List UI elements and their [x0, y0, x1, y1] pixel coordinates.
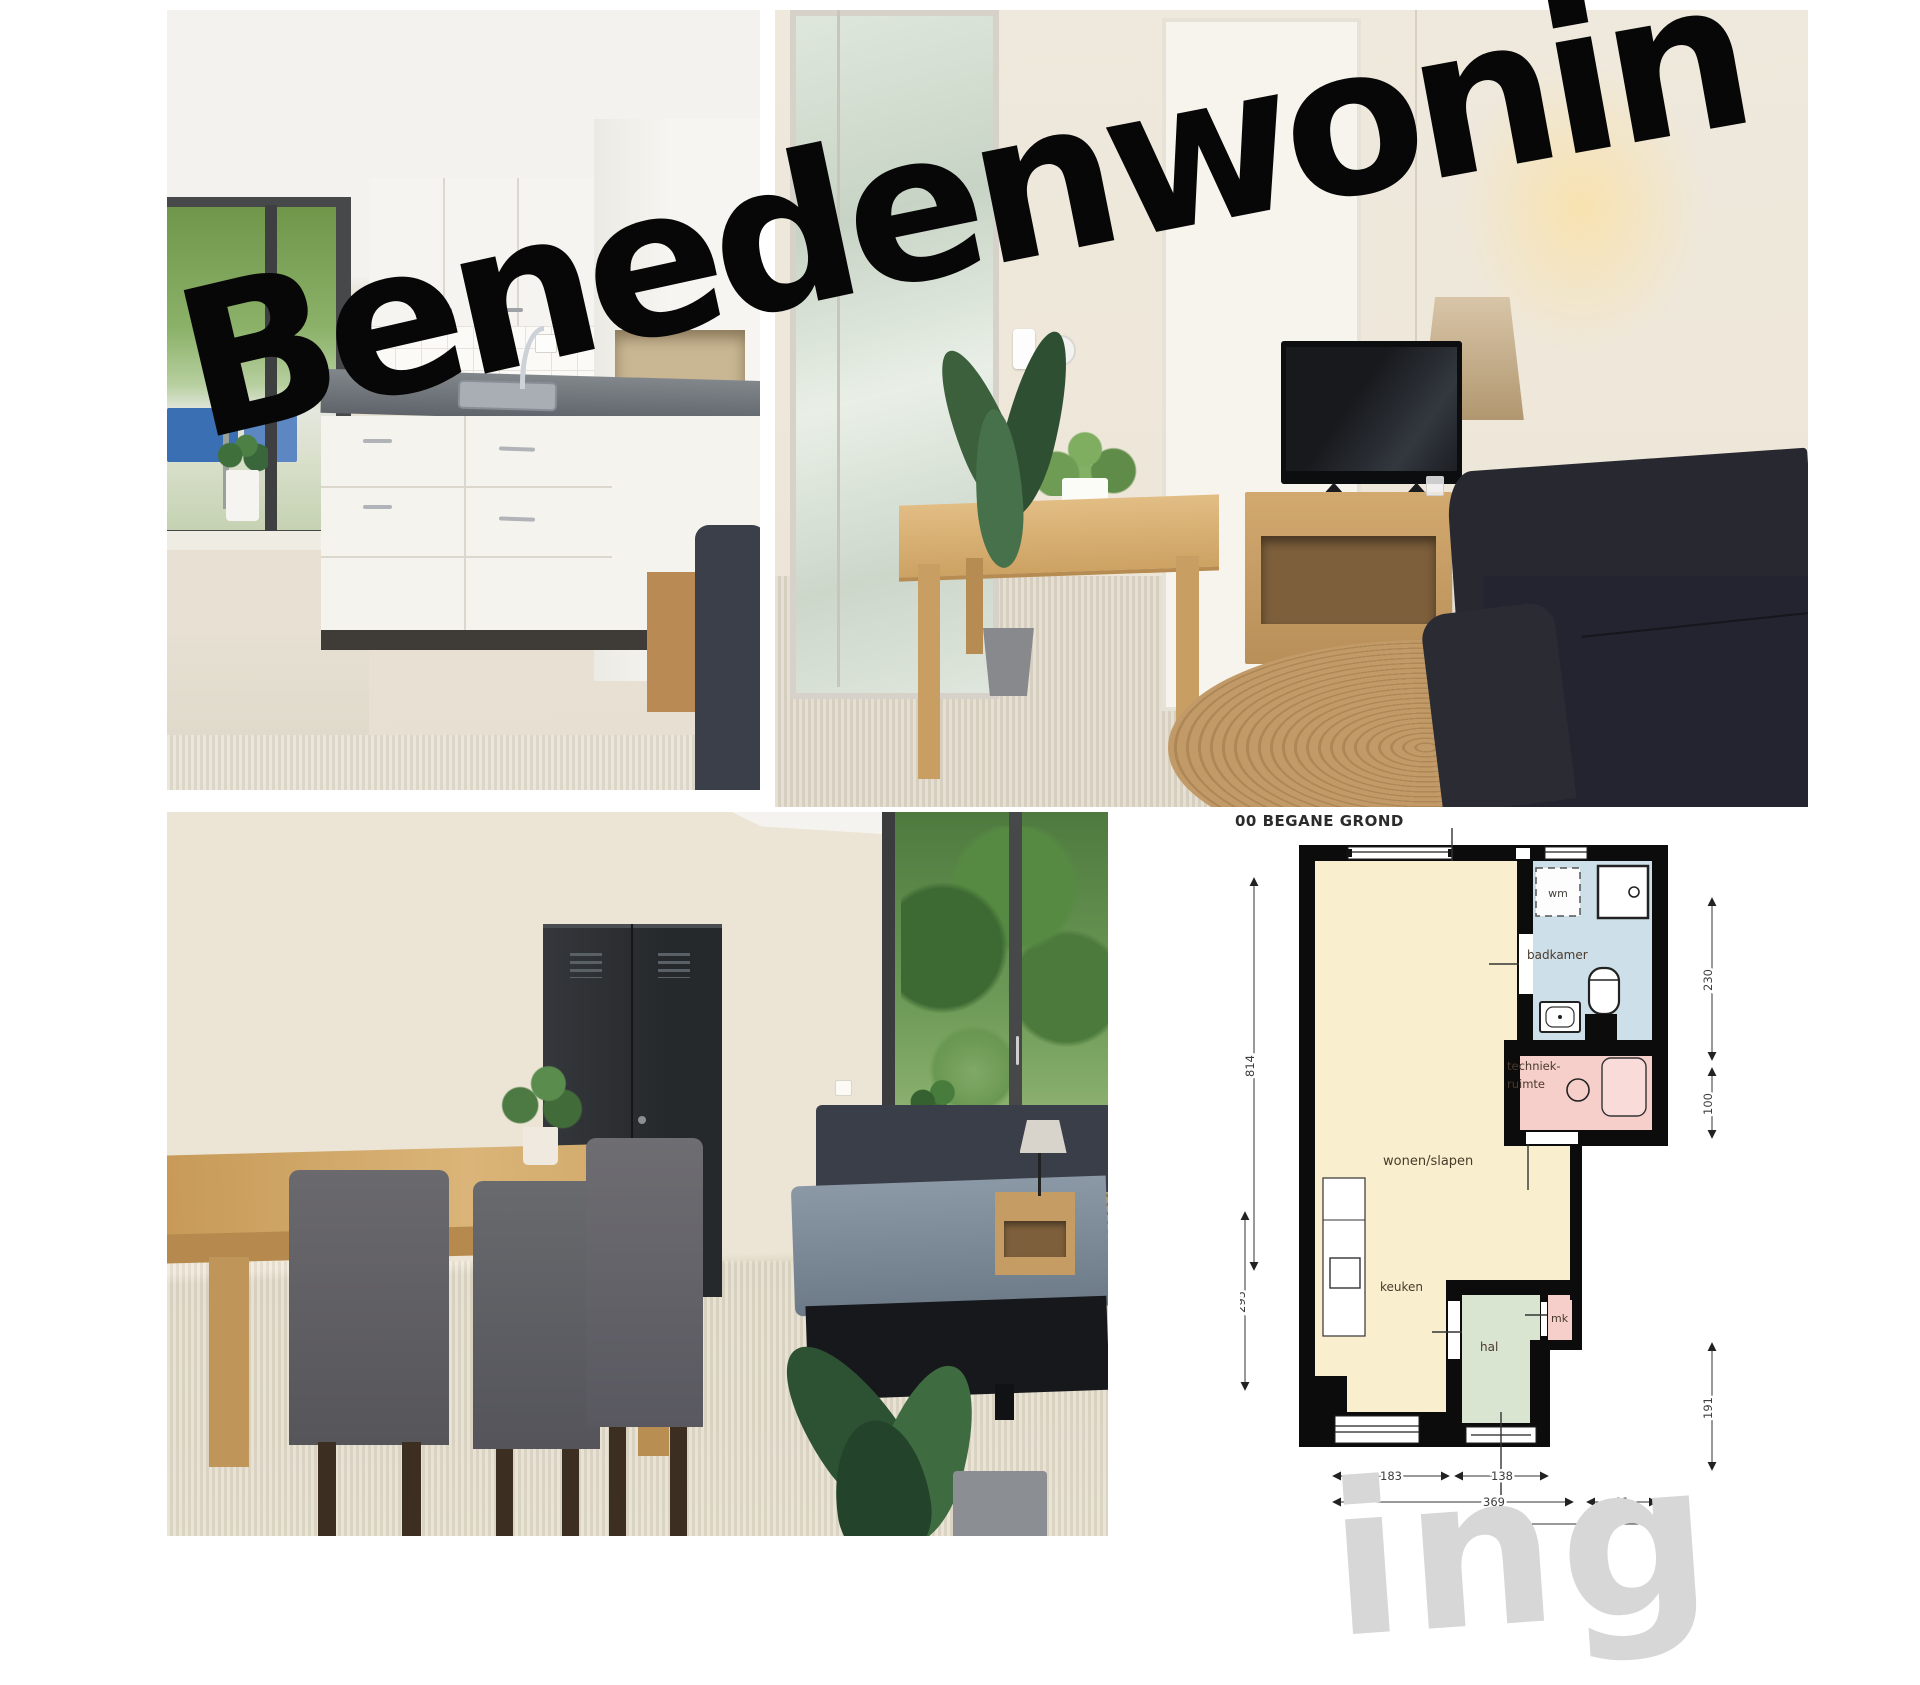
kitchen-drawer-seam	[321, 486, 612, 488]
dining-chair-legs	[318, 1442, 337, 1536]
wall-toilet-niche	[1585, 1014, 1617, 1040]
dining-lamp-shade	[1020, 1120, 1067, 1153]
hal-door-gap	[1448, 1301, 1460, 1359]
watermark-text: ing	[1323, 1432, 1721, 1668]
dim-label-295: 295	[1240, 1291, 1248, 1313]
kitchen-upper-cabinets	[369, 178, 594, 329]
room-label-keuken: keuken	[1380, 1280, 1423, 1294]
wall-mk-right	[1572, 1295, 1582, 1345]
kitchen-upper-cabinet-seam	[443, 178, 445, 326]
dining-table-leg	[209, 1257, 249, 1467]
dining-chair-back-3	[586, 1138, 704, 1428]
dining-sleeping-photo	[167, 812, 1108, 1536]
living-coffee-table-leg	[918, 564, 941, 779]
room-hal-fill	[1462, 1295, 1540, 1423]
dining-window-handle	[1016, 1036, 1019, 1065]
kitchen-sill-plant-pot	[226, 470, 259, 521]
window-top-living	[1348, 847, 1452, 859]
window-cap-2	[1448, 849, 1454, 857]
room-label-techniek-1: techniek-	[1507, 1059, 1561, 1073]
living-glass-cup	[1426, 476, 1445, 496]
living-tv-screen	[1286, 347, 1456, 471]
outside-patch	[1582, 1146, 1668, 1447]
door-gap-top	[1516, 848, 1530, 859]
dining-chair-legs-2	[402, 1442, 421, 1536]
kitchen-drawer-handle-2	[363, 505, 393, 509]
floorplan-title: 00 BEGANE GROND	[1235, 812, 1404, 830]
room-label-mk: mk	[1551, 1312, 1569, 1325]
dining-big-plant-pot	[953, 1471, 1047, 1536]
kitchen-counter-symbol	[1323, 1178, 1365, 1336]
kitchen-cabinet-handle	[428, 308, 452, 312]
dining-locker-vents-left	[570, 953, 602, 978]
kitchen-cabinet-handle-2	[499, 308, 523, 312]
living-coffee-table-leg-3	[966, 558, 983, 654]
room-label-hal: hal	[1480, 1340, 1498, 1354]
techniek-circle-symbol	[1567, 1079, 1589, 1101]
toilet-symbol	[1589, 968, 1619, 1014]
living-sofa-armrest	[1419, 600, 1577, 807]
dining-locker-keyhole	[638, 1116, 646, 1124]
kitchen-upper-cabinet-seam-2	[517, 178, 519, 326]
dining-bed-leg-2	[995, 1384, 1014, 1420]
shower-symbol	[1598, 866, 1648, 918]
room-label-wonen-slapen: wonen/slapen	[1383, 1154, 1473, 1169]
mk-door-gap	[1541, 1302, 1547, 1336]
kitchen-photo	[167, 10, 760, 790]
kitchen-floor-strip	[167, 735, 760, 790]
kitchen-window-mullion	[265, 205, 277, 533]
shower-drain-symbol	[1629, 887, 1639, 897]
dining-wall-socket	[835, 1080, 852, 1096]
kitchen-chair	[695, 525, 760, 790]
dining-table-plant-pot	[523, 1127, 559, 1165]
boiler-unit-symbol	[1602, 1058, 1646, 1116]
dining-table-plant-leaves	[492, 1062, 586, 1134]
dining-locker-vents-right	[658, 953, 690, 978]
kitchen-drawer-handle	[363, 439, 393, 443]
dining-chair-back	[289, 1170, 449, 1445]
room-label-badkamer: badkamer	[1527, 948, 1588, 962]
wall-below-mk	[1530, 1340, 1550, 1423]
dining-lamp-stem	[1038, 1149, 1041, 1196]
window-cap	[1346, 849, 1352, 857]
badkamer-door-gap	[1519, 934, 1533, 994]
kitchen-sill-plant-leaves	[214, 427, 267, 474]
dining-chair-back-2	[473, 1181, 600, 1449]
dining-chair-legs-6	[670, 1427, 687, 1536]
dim-label-230: 230	[1701, 969, 1715, 991]
room-label-techniek-2: ruimte	[1507, 1077, 1545, 1091]
kitchen-drawer-seam-2	[321, 556, 612, 558]
kitchen-sink-symbol	[1330, 1258, 1360, 1288]
dining-chair-legs-4	[562, 1449, 579, 1536]
window-top-badkamer	[1545, 847, 1587, 859]
wall-right-mid	[1570, 1130, 1582, 1300]
living-coffee-table-top	[899, 495, 1219, 582]
living-room-photo	[775, 10, 1808, 807]
dining-nightstand-shelf	[1004, 1221, 1065, 1257]
living-frosted-door-stile	[837, 10, 840, 687]
wall-left	[1299, 845, 1315, 1447]
dining-chair-legs-3	[496, 1449, 513, 1536]
dining-chair-legs-5	[609, 1427, 626, 1536]
wall-badkamer-techniek	[1520, 1040, 1668, 1056]
living-tv-cabinet-shelf	[1261, 536, 1437, 624]
washbasin-tap	[1558, 1015, 1562, 1019]
floorplan-rooms	[1315, 861, 1668, 1447]
dim-label-100: 100	[1701, 1093, 1715, 1115]
techniek-door-gap	[1526, 1132, 1578, 1144]
kitchen-windowsill	[167, 531, 345, 550]
wall-hal-top	[1446, 1280, 1582, 1295]
dim-label-814: 814	[1243, 1055, 1257, 1077]
kitchen-base-seam	[464, 416, 466, 642]
room-label-wm: wm	[1548, 887, 1568, 900]
wall-right-outer	[1652, 845, 1668, 1146]
